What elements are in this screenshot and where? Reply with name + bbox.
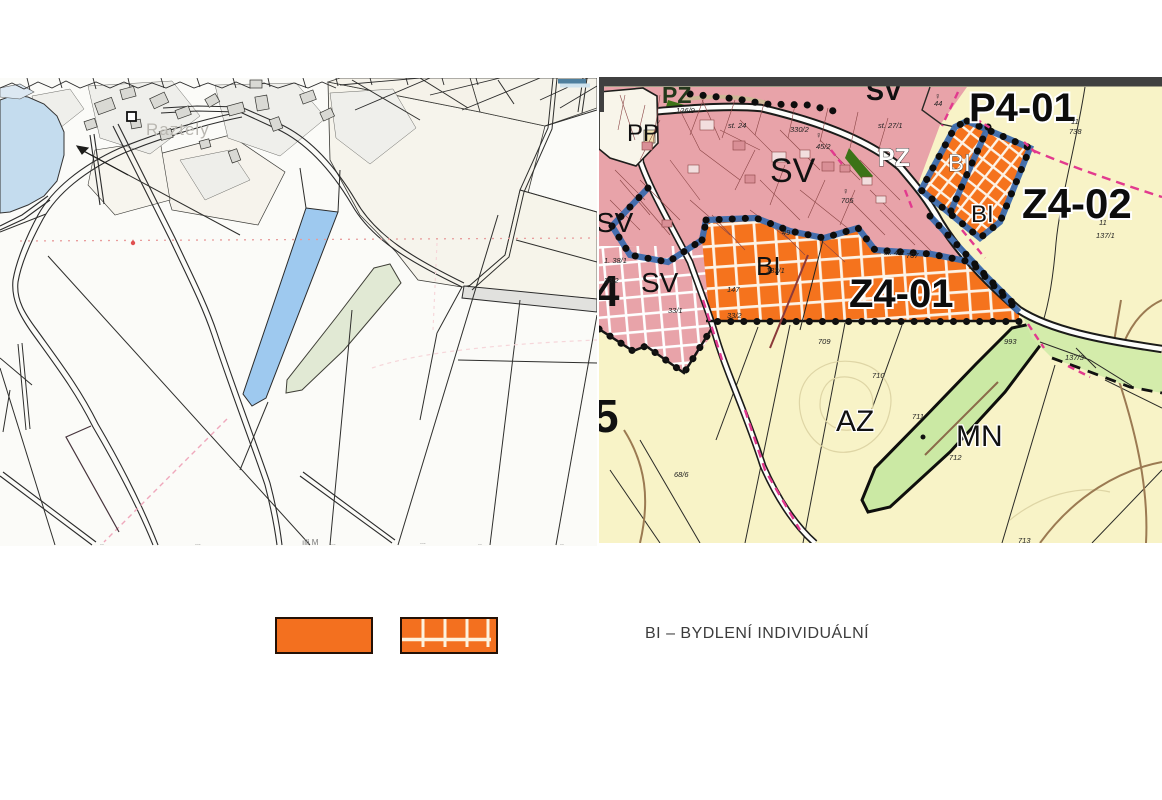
- svg-text:1. 38/1: 1. 38/1: [604, 256, 627, 265]
- svg-text:P4-01: P4-01: [969, 86, 1076, 130]
- svg-text:738: 738: [1069, 127, 1082, 136]
- svg-text:33/2: 33/2: [727, 311, 742, 320]
- svg-text:st. 4/2: st. 4/2: [884, 248, 905, 257]
- svg-text:..: ..: [560, 540, 564, 546]
- svg-text:707: 707: [906, 251, 919, 260]
- svg-text:713: 713: [1018, 536, 1031, 543]
- svg-text:133/1: 133/1: [766, 266, 785, 275]
- svg-text:☿: ☿: [935, 92, 941, 101]
- svg-text:705: 705: [841, 196, 854, 205]
- svg-text:st. 27/1: st. 27/1: [878, 121, 903, 130]
- svg-text:ılli M: ılli M: [302, 538, 319, 546]
- svg-text:712: 712: [949, 453, 962, 462]
- svg-text:BI: BI: [971, 201, 994, 228]
- svg-text:st. 24: st. 24: [728, 121, 746, 130]
- svg-text:68/6: 68/6: [674, 470, 689, 479]
- svg-text:710: 710: [872, 371, 885, 380]
- svg-text:11: 11: [1099, 218, 1107, 227]
- svg-text:SV: SV: [641, 267, 679, 298]
- svg-text:137/3: 137/3: [1065, 353, 1085, 362]
- svg-text:SV: SV: [599, 207, 634, 238]
- svg-text:709: 709: [818, 337, 831, 346]
- svg-text:5: 5: [599, 390, 619, 442]
- svg-text:..: ..: [478, 540, 482, 546]
- svg-text:126/9: 126/9: [676, 106, 696, 115]
- svg-text:49: 49: [782, 228, 791, 237]
- svg-text:AZ: AZ: [836, 405, 874, 438]
- svg-text:33/2: 33/2: [604, 276, 619, 285]
- svg-text:PP: PP: [627, 120, 659, 147]
- svg-text:147: 147: [727, 285, 740, 294]
- svg-text:4: 4: [599, 267, 620, 316]
- svg-text:Z4-01: Z4-01: [849, 272, 954, 316]
- svg-text:993: 993: [1004, 337, 1017, 346]
- svg-text:Raztely: Raztely: [146, 120, 210, 139]
- svg-text:137/1: 137/1: [1096, 231, 1115, 240]
- svg-text:SV: SV: [770, 152, 816, 190]
- svg-text:BI: BI: [948, 150, 971, 177]
- svg-text:..: ..: [100, 540, 104, 546]
- svg-text:MN: MN: [956, 420, 1003, 453]
- svg-text:33/1: 33/1: [668, 306, 683, 315]
- svg-text:...: ...: [420, 539, 426, 546]
- svg-text:45/2: 45/2: [816, 142, 831, 151]
- svg-text:☿: ☿: [843, 187, 849, 196]
- svg-text:...: ...: [330, 540, 336, 546]
- svg-text:711: 711: [912, 412, 924, 421]
- svg-text:☿: ☿: [816, 131, 822, 140]
- svg-text:330/2: 330/2: [790, 125, 810, 134]
- svg-text:PZ: PZ: [878, 144, 910, 172]
- svg-text:Z4-02: Z4-02: [1022, 180, 1132, 227]
- svg-text:...: ...: [195, 540, 201, 546]
- svg-text:11: 11: [1071, 117, 1079, 126]
